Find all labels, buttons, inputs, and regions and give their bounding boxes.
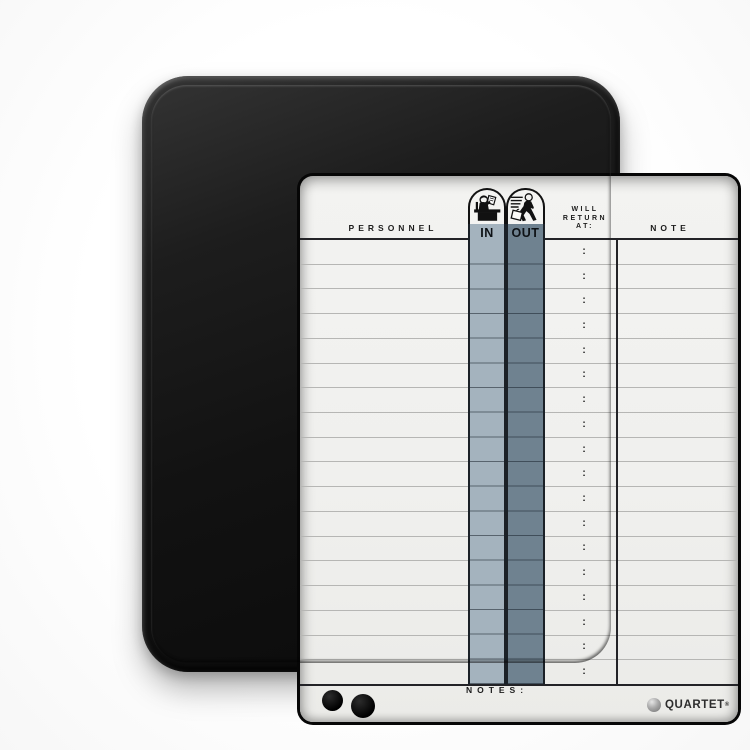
return-time-colon: : bbox=[574, 543, 594, 553]
out-column-label: OUT bbox=[508, 224, 543, 240]
return-time-colon: : bbox=[574, 469, 594, 479]
person-at-desk-icon bbox=[470, 190, 504, 224]
in-column-label: IN bbox=[470, 224, 504, 240]
brand-trademark: ® bbox=[725, 702, 729, 708]
return-time-colon: : bbox=[574, 395, 594, 405]
return-time-colon: : bbox=[574, 568, 594, 578]
return-time-colon: : bbox=[574, 321, 594, 331]
notes-label: NOTES: bbox=[466, 685, 528, 695]
will-return-line3: AT: bbox=[563, 223, 607, 232]
magnet bbox=[322, 690, 343, 711]
return-time-colon: : bbox=[574, 494, 594, 504]
quartet-logo: QUARTET ® bbox=[647, 697, 729, 712]
will-return-line2: RETURN bbox=[563, 215, 607, 224]
return-time-colon: : bbox=[574, 247, 594, 257]
return-time-colon: : bbox=[574, 370, 594, 380]
dry-erase-surface: PERSONNEL WILL RETURN AT: NOTE bbox=[300, 176, 738, 722]
in-arch bbox=[468, 188, 506, 224]
quartet-sphere-icon bbox=[647, 698, 661, 712]
will-return-line1: WILL bbox=[563, 206, 607, 215]
return-time-colon: : bbox=[574, 445, 594, 455]
magnet bbox=[351, 694, 375, 718]
return-time-colon: : bbox=[574, 593, 594, 603]
return-time-colon: : bbox=[574, 618, 594, 628]
note-column-header: NOTE bbox=[650, 223, 690, 233]
note-column-divider bbox=[616, 238, 618, 686]
in-column-band: IN bbox=[468, 224, 506, 684]
out-column-band: OUT bbox=[506, 224, 545, 684]
return-time-colon: : bbox=[574, 272, 594, 282]
return-time-colon: : bbox=[574, 420, 594, 430]
person-leaving-with-briefcase-icon bbox=[508, 190, 543, 224]
will-return-column-header: WILL RETURN AT: bbox=[563, 206, 607, 232]
return-time-colon: : bbox=[574, 296, 594, 306]
board-frame: PERSONNEL WILL RETURN AT: NOTE bbox=[142, 76, 620, 672]
return-time-colon: : bbox=[574, 519, 594, 529]
out-arch bbox=[506, 188, 545, 224]
return-time-colon: : bbox=[574, 346, 594, 356]
return-time-colon: : bbox=[574, 642, 594, 652]
personnel-column-header: PERSONNEL bbox=[349, 223, 438, 233]
brand-name: QUARTET bbox=[665, 699, 725, 711]
return-time-colon: : bbox=[574, 667, 594, 677]
